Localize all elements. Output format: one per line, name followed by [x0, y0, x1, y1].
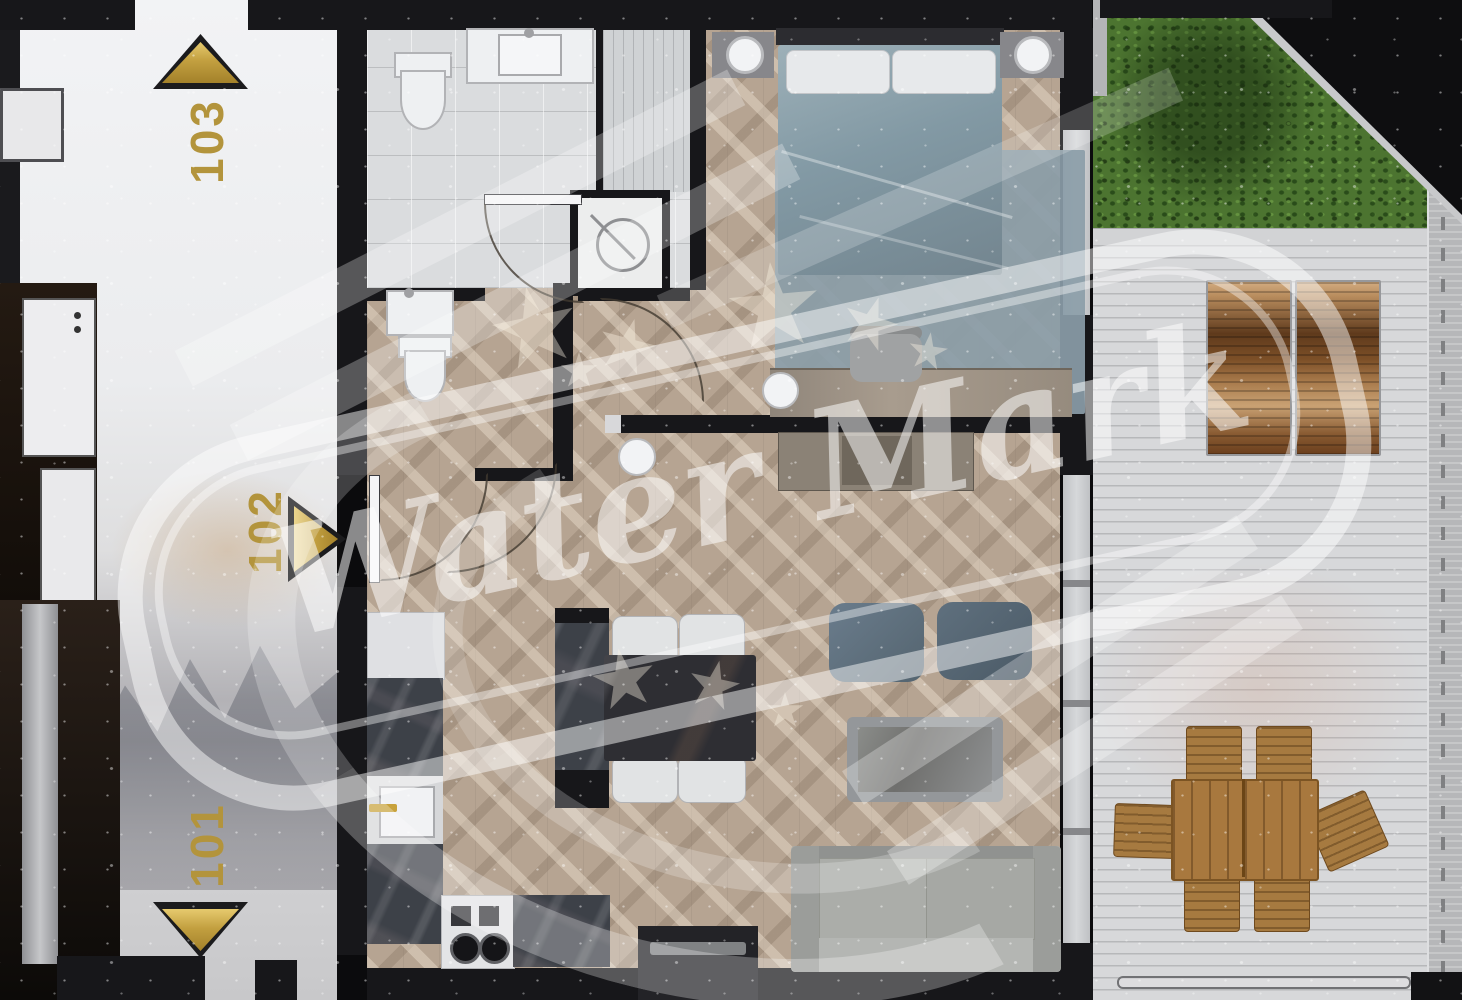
outdoor-dining-table	[1171, 779, 1319, 881]
elevator-door-panel	[22, 298, 96, 457]
corridor-bottom-wall	[57, 956, 205, 1000]
door-handle-dot	[74, 326, 81, 333]
left-lower-dark-zone	[0, 600, 120, 1000]
pouf	[829, 603, 924, 682]
kitchen-counter-marble	[367, 844, 443, 944]
wall-right-bottom	[1060, 943, 1093, 1000]
unit-number-text: 101	[184, 802, 230, 888]
outdoor-chair	[1254, 872, 1310, 932]
glass-mullion	[1063, 580, 1090, 587]
burner	[450, 933, 481, 964]
cooktop-knob	[451, 906, 471, 926]
shower-divider-wall	[596, 28, 603, 192]
kitchen-sink	[379, 786, 435, 838]
sliding-glass-door	[1063, 475, 1090, 943]
entry-door-leaf	[369, 475, 380, 583]
wall-garden-top	[1100, 0, 1332, 18]
sofa-armrest	[1033, 846, 1061, 972]
wall-bath-bedroom	[690, 28, 706, 290]
sofa-rail	[819, 846, 1033, 858]
wall-corridor-lower	[337, 587, 367, 955]
sun-lounger	[1295, 280, 1381, 456]
glass-mullion	[1063, 828, 1090, 835]
vanity-basin	[498, 34, 562, 76]
pillow	[786, 50, 890, 94]
bed-headboard	[776, 28, 1004, 45]
wc-toilet-bowl	[404, 350, 446, 402]
shower-floor	[603, 28, 690, 192]
cooktop-knob	[479, 906, 499, 926]
garden-edging	[1093, 228, 1427, 246]
unit-label-102: 102	[215, 478, 315, 583]
elevator-door-panel	[40, 468, 96, 610]
sink-gold-handle	[369, 804, 397, 812]
terrace-step-line	[1117, 976, 1411, 989]
table-lamp	[726, 36, 764, 74]
dining-chair	[612, 755, 678, 803]
sun-lounger	[1206, 280, 1292, 456]
soundbar	[650, 942, 746, 955]
left-gray-column	[22, 604, 58, 964]
left-niche	[0, 88, 64, 162]
arrow-up-icon	[153, 34, 248, 89]
unit-number-text: 102	[242, 488, 288, 574]
sofa-cushion	[819, 858, 927, 940]
wall-right-top	[1060, 28, 1093, 130]
wall-corridor-upper	[337, 28, 367, 475]
coffee-table-top	[858, 727, 992, 792]
corridor-bottom-wall	[255, 960, 297, 1000]
desk	[770, 368, 1072, 417]
island-cap	[555, 770, 609, 808]
wall-partition-cap	[605, 415, 621, 433]
desk-stool	[762, 372, 799, 409]
fridge	[367, 612, 445, 680]
sofa-cushion	[926, 858, 1035, 940]
walkway-post	[1411, 972, 1462, 1000]
sideboard-section	[842, 436, 912, 485]
table-center-seam	[1242, 779, 1245, 877]
unit-number-text: 103	[184, 98, 230, 184]
table-lamp	[1014, 36, 1052, 74]
wc-sink	[386, 290, 454, 336]
floor-plan: 103 102 101 Water Mark	[0, 0, 1462, 1000]
kitchen-counter-marble	[367, 678, 443, 776]
hall-stool	[618, 438, 656, 476]
outdoor-chair	[1186, 726, 1242, 784]
wall-top-left	[0, 0, 135, 30]
outdoor-chair	[1184, 872, 1240, 932]
sofa-seat-band	[819, 938, 1033, 972]
sofa-armrest	[791, 846, 819, 972]
burner	[479, 933, 510, 964]
dining-chair	[678, 755, 746, 803]
wall-partition	[605, 415, 1092, 433]
unit-label-103: 103	[157, 88, 257, 193]
toilet-bowl	[400, 70, 446, 130]
pillow	[892, 50, 996, 94]
desk-chair	[850, 334, 922, 382]
kitchen-counter-marble	[513, 895, 610, 967]
outdoor-chair	[1113, 803, 1177, 859]
dining-table	[604, 655, 756, 761]
pouf	[937, 602, 1032, 680]
arrow-down-icon	[153, 902, 248, 958]
island-cap	[555, 608, 609, 623]
wall-top-main	[248, 0, 1092, 30]
wc-faucet-dot	[404, 288, 414, 298]
door-handle-dot	[74, 312, 81, 319]
unit-label-101: 101	[157, 790, 257, 900]
faucet-dot	[524, 28, 534, 38]
tv-bench	[638, 926, 758, 1000]
wall-wc-right	[553, 283, 573, 481]
outdoor-chair	[1256, 726, 1312, 784]
glass-mullion	[1063, 700, 1090, 707]
